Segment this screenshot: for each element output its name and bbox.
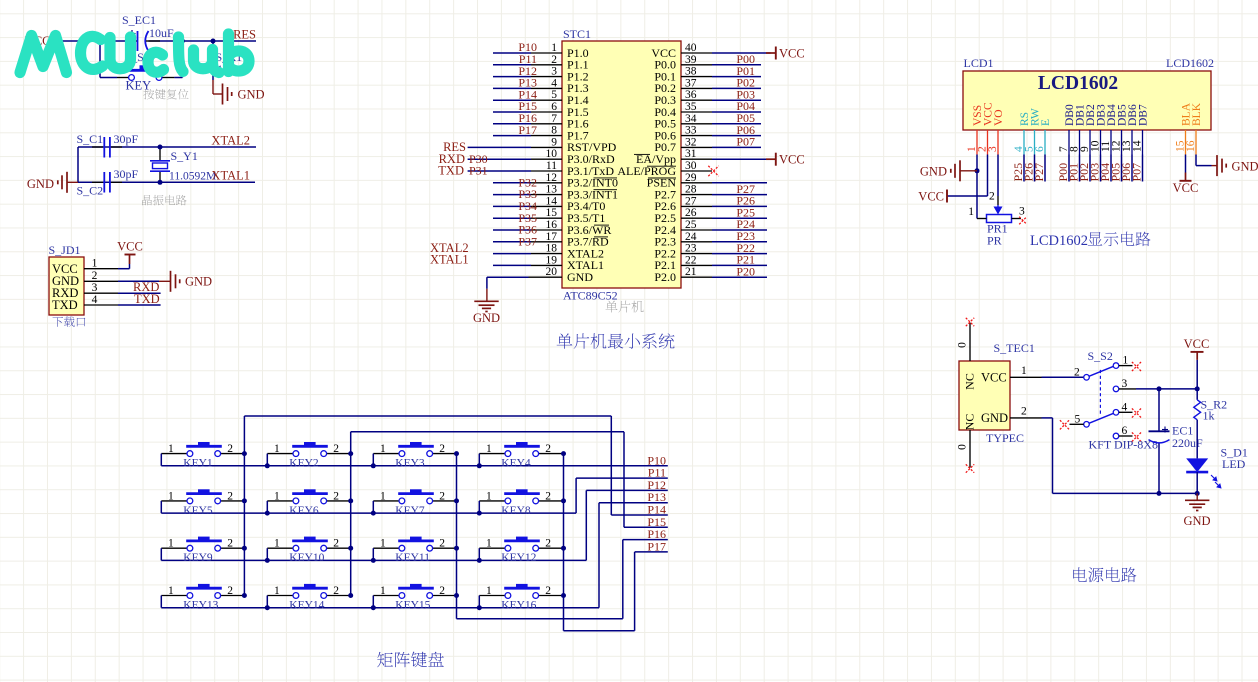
svg-text:40: 40 xyxy=(685,42,697,54)
svg-text:P37: P37 xyxy=(518,234,537,248)
svg-text:19: 19 xyxy=(546,254,558,266)
svg-text:31: 31 xyxy=(685,148,697,160)
svg-text:39: 39 xyxy=(685,54,697,66)
svg-text:1: 1 xyxy=(551,42,557,54)
svg-text:GND: GND xyxy=(920,165,947,179)
svg-text:1: 1 xyxy=(486,490,492,502)
svg-text:TXD: TXD xyxy=(438,164,464,178)
svg-text:1: 1 xyxy=(380,538,386,550)
svg-text:KFT DIP-8X8: KFT DIP-8X8 xyxy=(1089,438,1158,452)
svg-text:1: 1 xyxy=(274,585,280,597)
svg-text:2: 2 xyxy=(439,585,445,597)
svg-text:S_Y1: S_Y1 xyxy=(171,149,198,163)
svg-text:3: 3 xyxy=(987,146,999,152)
svg-text:26: 26 xyxy=(685,207,697,219)
svg-text:38: 38 xyxy=(685,66,697,78)
svg-text:11.0592M: 11.0592M xyxy=(169,171,216,183)
svg-text:VCC: VCC xyxy=(779,153,805,167)
svg-text:KEY16: KEY16 xyxy=(501,600,536,612)
svg-text:KEY5: KEY5 xyxy=(183,505,213,517)
svg-text:KEY11: KEY11 xyxy=(395,552,430,564)
svg-text:2: 2 xyxy=(545,538,551,550)
svg-text:2: 2 xyxy=(333,585,339,597)
svg-text:10: 10 xyxy=(546,148,558,160)
svg-text:2: 2 xyxy=(333,443,339,455)
svg-text:VCC: VCC xyxy=(1173,181,1199,195)
svg-text:2: 2 xyxy=(439,443,445,455)
svg-text:30: 30 xyxy=(685,160,697,172)
svg-text:16: 16 xyxy=(1185,140,1197,152)
svg-text:1: 1 xyxy=(92,258,98,270)
svg-text:VCC: VCC xyxy=(981,371,1007,385)
svg-text:18: 18 xyxy=(546,243,558,255)
svg-text:KEY14: KEY14 xyxy=(289,600,324,612)
svg-text:35: 35 xyxy=(685,101,697,113)
svg-text:30pF: 30pF xyxy=(114,132,139,146)
svg-text:S_C2: S_C2 xyxy=(77,184,104,198)
svg-text:GND: GND xyxy=(981,411,1008,425)
svg-text:8: 8 xyxy=(551,125,557,137)
svg-text:1: 1 xyxy=(486,443,492,455)
svg-text:1: 1 xyxy=(168,490,174,502)
svg-text:13: 13 xyxy=(546,184,558,196)
svg-text:3: 3 xyxy=(1122,378,1128,390)
svg-text:4: 4 xyxy=(551,77,557,89)
svg-text:12: 12 xyxy=(546,172,558,184)
svg-text:GND: GND xyxy=(27,177,54,191)
svg-text:17: 17 xyxy=(546,231,558,243)
svg-text:XTAL2: XTAL2 xyxy=(211,134,250,148)
svg-text:0: 0 xyxy=(957,342,969,348)
svg-text:KEY7: KEY7 xyxy=(395,505,425,517)
svg-text:11: 11 xyxy=(546,160,557,172)
svg-text:2: 2 xyxy=(439,490,445,502)
svg-text:2: 2 xyxy=(227,538,233,550)
svg-text:P07: P07 xyxy=(1130,163,1144,182)
svg-text:1: 1 xyxy=(380,585,386,597)
svg-text:1: 1 xyxy=(274,443,280,455)
svg-text:S_JD1: S_JD1 xyxy=(49,243,81,257)
svg-text:P31: P31 xyxy=(469,164,488,178)
svg-text:20: 20 xyxy=(546,266,558,278)
svg-text:29: 29 xyxy=(685,172,697,184)
svg-text:21: 21 xyxy=(685,266,697,278)
svg-text:2: 2 xyxy=(1021,406,1027,418)
svg-text:9: 9 xyxy=(551,136,557,148)
svg-text:RES: RES xyxy=(233,28,256,42)
svg-text:1: 1 xyxy=(968,206,974,218)
svg-text:KEY12: KEY12 xyxy=(501,552,536,564)
svg-text:VCC: VCC xyxy=(117,240,143,254)
svg-text:1: 1 xyxy=(486,538,492,550)
svg-text:1: 1 xyxy=(168,585,174,597)
svg-text:5: 5 xyxy=(551,89,557,101)
svg-text:STC1: STC1 xyxy=(563,27,591,41)
svg-text:14: 14 xyxy=(1132,140,1144,152)
svg-text:1k: 1k xyxy=(1203,409,1215,423)
svg-text:LCD1: LCD1 xyxy=(964,56,994,70)
svg-text:VO: VO xyxy=(993,109,1005,126)
svg-text:VCC: VCC xyxy=(1184,337,1210,351)
svg-text:15: 15 xyxy=(546,207,558,219)
svg-text:3: 3 xyxy=(1019,206,1025,218)
svg-text:PR: PR xyxy=(987,234,1002,248)
svg-text:24: 24 xyxy=(685,231,697,243)
svg-text:4: 4 xyxy=(92,294,98,306)
svg-text:30pF: 30pF xyxy=(114,167,139,181)
svg-text:ATC89C52: ATC89C52 xyxy=(563,289,618,303)
svg-text:2: 2 xyxy=(227,443,233,455)
svg-text:27: 27 xyxy=(685,195,697,207)
svg-text:1: 1 xyxy=(380,443,386,455)
svg-text:23: 23 xyxy=(685,243,697,255)
svg-text:22: 22 xyxy=(685,254,697,266)
svg-text:0: 0 xyxy=(957,444,969,450)
svg-text:LED: LED xyxy=(1222,457,1246,471)
svg-text:KEY9: KEY9 xyxy=(183,552,213,564)
svg-text:LCD1602: LCD1602 xyxy=(1030,233,1088,249)
svg-text:VCC: VCC xyxy=(779,47,805,61)
svg-text:1: 1 xyxy=(1123,355,1129,367)
svg-text:2: 2 xyxy=(333,490,339,502)
svg-text:KEY8: KEY8 xyxy=(501,505,531,517)
svg-text:1: 1 xyxy=(380,490,386,502)
svg-text:16: 16 xyxy=(546,219,558,231)
svg-text:1: 1 xyxy=(274,490,280,502)
svg-text:3: 3 xyxy=(551,66,557,78)
svg-text:220uF: 220uF xyxy=(1172,436,1203,450)
svg-text:2: 2 xyxy=(551,54,557,66)
svg-text:E: E xyxy=(1040,119,1052,126)
svg-text:2: 2 xyxy=(545,585,551,597)
svg-text:P17: P17 xyxy=(518,123,537,137)
svg-text:KEY: KEY xyxy=(126,79,152,93)
svg-text:34: 34 xyxy=(685,113,697,125)
svg-text:KEY1: KEY1 xyxy=(183,458,213,470)
svg-text:2: 2 xyxy=(92,270,98,282)
svg-text:2: 2 xyxy=(227,490,233,502)
svg-text:NC: NC xyxy=(963,414,977,431)
svg-text:VCC: VCC xyxy=(918,190,944,204)
svg-text:P20: P20 xyxy=(736,264,755,278)
svg-text:36: 36 xyxy=(685,89,697,101)
svg-text:TYPEC: TYPEC xyxy=(986,431,1024,445)
svg-text:1: 1 xyxy=(1021,365,1027,377)
svg-text:1: 1 xyxy=(274,538,280,550)
svg-text:P17: P17 xyxy=(647,539,666,553)
svg-text:TXD: TXD xyxy=(134,292,160,306)
svg-text:GND: GND xyxy=(1183,514,1210,528)
svg-text:GND: GND xyxy=(1232,160,1258,174)
svg-text:S_TEC1: S_TEC1 xyxy=(994,341,1035,355)
svg-text:NC: NC xyxy=(963,373,977,390)
svg-text:1: 1 xyxy=(168,538,174,550)
svg-text:S_C1: S_C1 xyxy=(77,132,104,146)
svg-text:KEY13: KEY13 xyxy=(183,600,218,612)
svg-text:P2.0: P2.0 xyxy=(654,270,676,284)
svg-text:DB7: DB7 xyxy=(1138,104,1150,126)
svg-text:3: 3 xyxy=(92,282,98,294)
svg-text:2: 2 xyxy=(1074,367,1080,379)
svg-text:BLK: BLK xyxy=(1191,102,1203,126)
svg-text:S_S2: S_S2 xyxy=(1088,349,1113,363)
svg-text:6: 6 xyxy=(551,101,557,113)
svg-text:KEY15: KEY15 xyxy=(395,600,430,612)
svg-text:GND: GND xyxy=(567,270,593,284)
svg-text:7: 7 xyxy=(551,113,557,125)
svg-text:KEY3: KEY3 xyxy=(395,458,425,470)
svg-text:28: 28 xyxy=(685,184,697,196)
svg-text:KEY10: KEY10 xyxy=(289,552,324,564)
svg-text:2: 2 xyxy=(439,538,445,550)
svg-text:GND: GND xyxy=(185,275,212,289)
svg-text:GND: GND xyxy=(238,88,265,102)
svg-text:XTAL1: XTAL1 xyxy=(211,169,250,183)
svg-text:2: 2 xyxy=(545,443,551,455)
svg-text:S_EC1: S_EC1 xyxy=(122,13,156,27)
svg-text:1: 1 xyxy=(168,443,174,455)
svg-text:P27: P27 xyxy=(1032,163,1046,182)
svg-text:2: 2 xyxy=(333,538,339,550)
svg-text:2: 2 xyxy=(989,191,995,203)
svg-text:33: 33 xyxy=(685,125,697,137)
svg-text:25: 25 xyxy=(685,219,697,231)
svg-text:GND: GND xyxy=(473,311,500,325)
svg-text:TXD: TXD xyxy=(52,298,78,312)
svg-text:KEY2: KEY2 xyxy=(289,458,319,470)
svg-text:XTAL1: XTAL1 xyxy=(430,253,469,267)
svg-text:2: 2 xyxy=(227,585,233,597)
svg-text:14: 14 xyxy=(546,195,558,207)
svg-text:6: 6 xyxy=(1122,425,1128,437)
svg-text:KEY4: KEY4 xyxy=(501,458,531,470)
svg-text:37: 37 xyxy=(685,77,697,89)
svg-text:10uF: 10uF xyxy=(149,26,174,40)
svg-text:KEY6: KEY6 xyxy=(289,505,319,517)
svg-text:P07: P07 xyxy=(736,135,755,149)
svg-text:1: 1 xyxy=(486,585,492,597)
svg-text:6: 6 xyxy=(1034,146,1046,152)
svg-text:LCD1602: LCD1602 xyxy=(1166,56,1214,70)
svg-text:LCD1602: LCD1602 xyxy=(1038,73,1118,94)
svg-text:32: 32 xyxy=(685,136,697,148)
svg-text:2: 2 xyxy=(545,490,551,502)
